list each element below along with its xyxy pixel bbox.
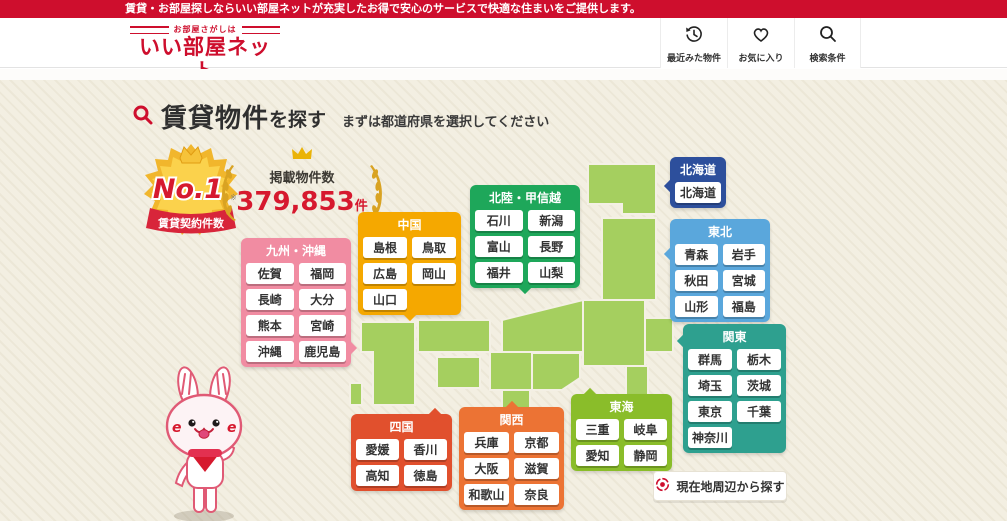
region-title: 四国 [356,419,447,436]
page-title-rest: を探す [269,105,326,132]
site-header: お部屋さがしは いい部屋ネット 最近みた物件 お気に入り [0,18,1007,68]
pref-button-山口[interactable]: 山口 [363,289,407,310]
pref-button-鹿児島[interactable]: 鹿児島 [299,341,347,362]
page-title: 賃貸物件 を探す まずは都道府県を選択してください [131,98,549,135]
pref-button-広島[interactable]: 広島 [363,263,407,284]
region-box-chugoku: 中国島根鳥取広島岡山山口 [358,212,461,315]
badge-rank: No.1 [153,174,223,205]
region-box-kyushu: 九州・沖縄佐賀福岡長崎大分熊本宮崎沖縄鹿児島 [241,238,351,367]
japan-map-block [583,300,645,366]
pref-button-静岡[interactable]: 静岡 [624,445,667,466]
current-location-button[interactable]: 現在地周辺から探す [653,471,787,501]
japan-map-block [645,318,673,352]
nav-search-conditions[interactable]: 検索条件 [794,18,861,68]
pref-button-奈良[interactable]: 奈良 [514,484,559,505]
nav-favorites-label: お気に入り [738,51,783,64]
pref-button-滋賀[interactable]: 滋賀 [514,458,559,479]
region-box-tokai: 東海三重岐阜愛知静岡 [571,394,672,471]
pref-grid: 三重岐阜愛知静岡 [576,419,667,466]
pref-grid: 島根鳥取広島岡山山口 [363,237,456,310]
pref-button-大阪[interactable]: 大阪 [464,458,509,479]
region-box-shikoku: 四国愛媛香川高知徳島 [351,414,452,491]
region-title: 中国 [363,217,456,234]
pref-button-岐阜[interactable]: 岐阜 [624,419,667,440]
pref-button-沖縄[interactable]: 沖縄 [246,341,294,362]
region-title: 北陸・甲信越 [475,190,575,207]
pref-button-和歌山[interactable]: 和歌山 [464,484,509,505]
main-stage: 賃貸物件 を探す まずは都道府県を選択してください No.1 ※ 賃貸契約件数 [0,80,1007,521]
japan-map-block [502,300,583,352]
pref-button-千葉[interactable]: 千葉 [737,401,781,422]
search-icon [817,23,839,49]
region-box-tohoku: 東北青森岩手秋田宮城山形福島 [670,219,770,322]
pref-button-長野[interactable]: 長野 [528,236,576,257]
search-title-icon [131,103,155,131]
nav-favorites[interactable]: お気に入り [727,18,794,68]
japan-map-block [350,383,362,405]
pref-button-北海道[interactable]: 北海道 [675,182,721,203]
region-title: 九州・沖縄 [246,243,346,260]
page-subtitle: まずは都道府県を選択してください [342,111,549,130]
pref-button-群馬[interactable]: 群馬 [688,349,732,370]
japan-map-block [490,352,532,390]
pref-button-岡山[interactable]: 岡山 [412,263,456,284]
japan-map-block [588,164,656,214]
japan-map-block [602,218,656,300]
region-box-hokuriku: 北陸・甲信越石川新潟富山長野福井山梨 [470,185,580,288]
pref-button-佐賀[interactable]: 佐賀 [246,263,294,284]
badge-ribbon-label: 賃貸契約件数 [157,216,225,230]
pref-grid: 石川新潟富山長野福井山梨 [475,210,575,283]
history-icon [683,23,705,49]
pref-button-茨城[interactable]: 茨城 [737,375,781,396]
region-title: 東海 [576,399,667,416]
pref-button-徳島[interactable]: 徳島 [404,465,447,486]
rabbit-mascot: e e [142,366,267,521]
pref-button-山形[interactable]: 山形 [675,296,718,317]
pref-button-熊本[interactable]: 熊本 [246,315,294,336]
pref-button-鳥取[interactable]: 鳥取 [412,237,456,258]
pref-grid: 北海道 [675,182,721,203]
top-message: 賃貸・お部屋探しならいい部屋ネットが充実したお得で安心のサービスで快適な住まいを… [0,0,1007,18]
header-substrip [0,69,1007,80]
pref-button-岩手[interactable]: 岩手 [723,244,766,265]
nav-search-conditions-label: 検索条件 [809,51,845,64]
pref-button-島根[interactable]: 島根 [363,237,407,258]
pref-grid: 兵庫京都大阪滋賀和歌山奈良 [464,432,559,505]
pref-button-宮崎[interactable]: 宮崎 [299,315,347,336]
region-title: 関西 [464,412,559,429]
pref-button-埼玉[interactable]: 埼玉 [688,375,732,396]
header-nav: 最近みた物件 お気に入り 検索条件 [660,18,861,68]
nav-recently-viewed[interactable]: 最近みた物件 [660,18,727,68]
region-box-hokkaido: 北海道北海道 [670,157,726,208]
region-box-kansai: 関西兵庫京都大阪滋賀和歌山奈良 [459,407,564,510]
pref-button-愛知[interactable]: 愛知 [576,445,619,466]
svg-text:e: e [172,420,182,436]
current-location-label: 現在地周辺から探す [676,478,784,495]
pref-grid: 群馬栃木埼玉茨城東京千葉神奈川 [688,349,781,448]
japan-map-block [437,357,480,388]
region-box-kanto: 関東群馬栃木埼玉茨城東京千葉神奈川 [683,324,786,453]
pref-button-京都[interactable]: 京都 [514,432,559,453]
pref-button-山梨[interactable]: 山梨 [528,262,576,283]
pref-button-福島[interactable]: 福島 [723,296,766,317]
pref-grid: 青森岩手秋田宮城山形福島 [675,244,765,317]
top-message-bar: 賃貸・お部屋探しならいい部屋ネットが充実したお得で安心のサービスで快適な住まいを… [0,0,1007,18]
pref-grid: 愛媛香川高知徳島 [356,439,447,486]
pref-grid: 佐賀福岡長崎大分熊本宮崎沖縄鹿児島 [246,263,346,362]
pref-button-愛媛[interactable]: 愛媛 [356,439,399,460]
pref-button-神奈川[interactable]: 神奈川 [688,427,732,448]
pref-button-福井[interactable]: 福井 [475,262,523,283]
japan-map-block [361,322,415,405]
region-title: 東北 [675,224,765,241]
pref-button-東京[interactable]: 東京 [688,401,732,422]
pref-button-宮城[interactable]: 宮城 [723,270,766,291]
pref-button-長崎[interactable]: 長崎 [246,289,294,310]
pref-button-栃木[interactable]: 栃木 [737,349,781,370]
pref-button-富山[interactable]: 富山 [475,236,523,257]
pref-button-福岡[interactable]: 福岡 [299,263,347,284]
pref-button-秋田[interactable]: 秋田 [675,270,718,291]
laurel-left-icon [220,164,238,226]
svg-text:e: e [227,420,237,436]
region-title: 関東 [688,329,781,346]
pref-button-兵庫[interactable]: 兵庫 [464,432,509,453]
target-icon [655,477,670,496]
region-title: 北海道 [675,162,721,179]
pref-button-石川[interactable]: 石川 [475,210,523,231]
pref-button-大分[interactable]: 大分 [299,289,347,310]
pref-button-新潟[interactable]: 新潟 [528,210,576,231]
page-title-strong: 賃貸物件 [161,98,269,135]
pref-button-三重[interactable]: 三重 [576,419,619,440]
pref-button-香川[interactable]: 香川 [404,439,447,460]
japan-map-block [530,353,580,390]
heart-icon [750,23,772,49]
logo-tagline: お部屋さがしは [130,24,280,35]
japan-map-block [418,320,490,352]
nav-recently-viewed-label: 最近みた物件 [667,51,721,64]
japan-map-block [626,366,648,396]
pref-button-高知[interactable]: 高知 [356,465,399,486]
pref-button-青森[interactable]: 青森 [675,244,718,265]
